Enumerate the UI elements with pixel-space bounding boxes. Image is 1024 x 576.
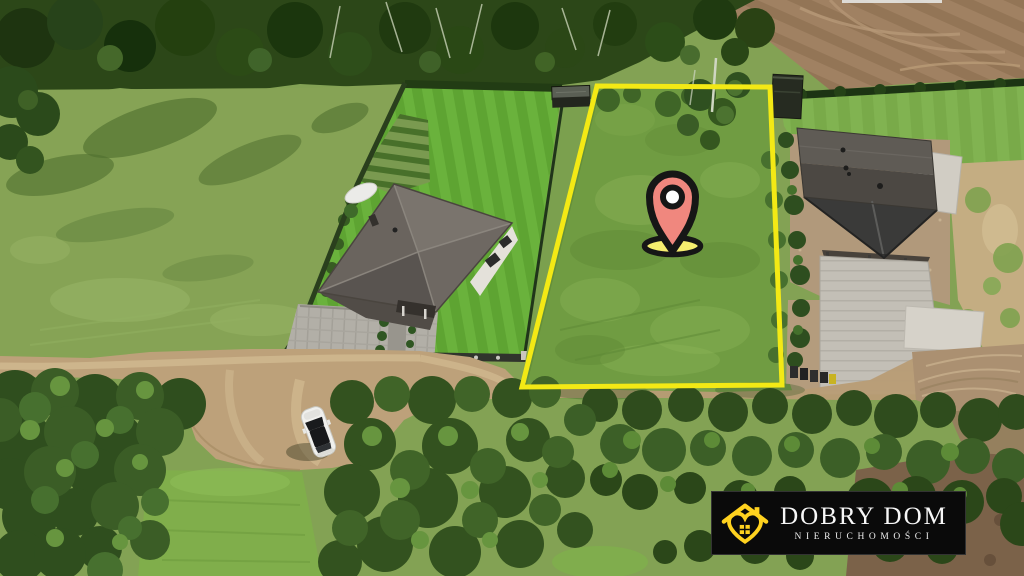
side-pad: [904, 306, 984, 352]
agency-name: DOBRY DOM: [780, 504, 948, 529]
shed-left: [552, 85, 591, 107]
location-pin-icon: [645, 174, 701, 254]
agency-subtitle: NIERUCHOMOŚCI: [795, 533, 934, 543]
aerial-photo: [0, 0, 1024, 576]
pin-center-dot: [663, 188, 682, 207]
white-fence-strip: [842, 0, 942, 3]
listing-photo: DOBRY DOM NIERUCHOMOŚCI: [0, 0, 1024, 576]
house-heart-logo-icon: [721, 499, 769, 547]
agency-banner: DOBRY DOM NIERUCHOMOŚCI: [711, 491, 966, 555]
back-hedge: [405, 84, 562, 88]
topiary-bush: [344, 204, 358, 218]
shed-right: [771, 74, 803, 119]
